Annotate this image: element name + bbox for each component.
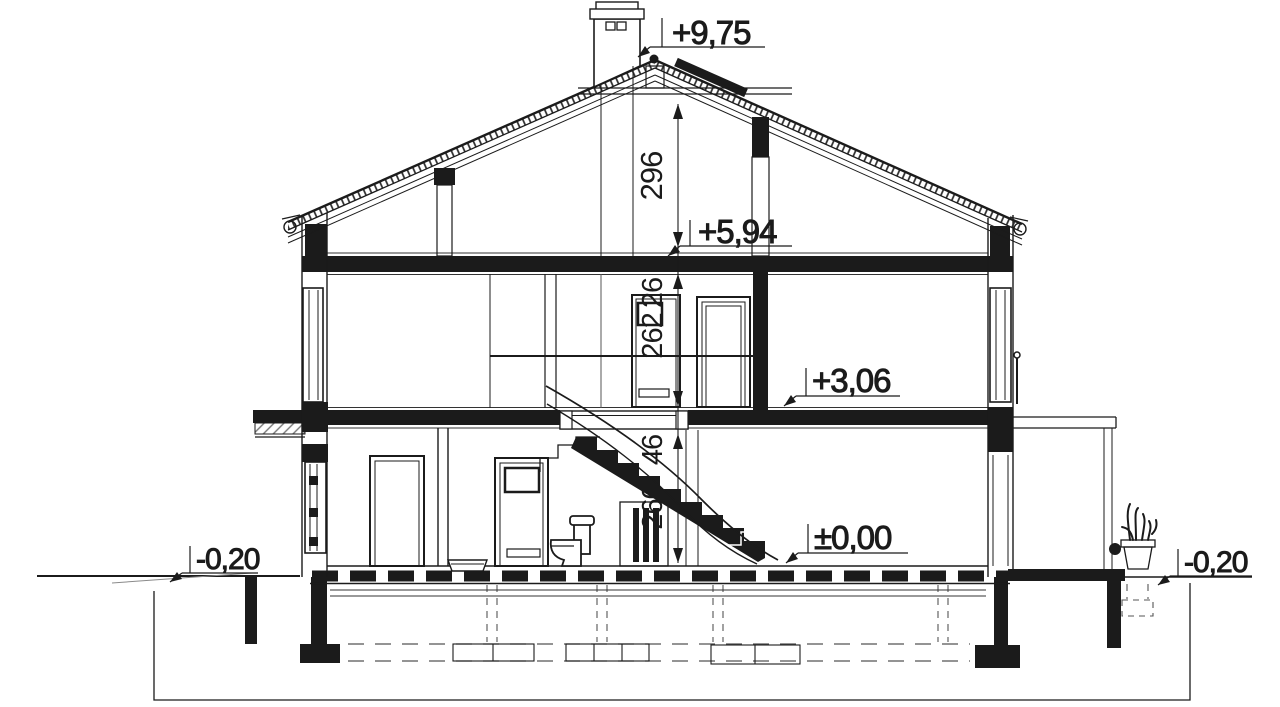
floor-basin — [448, 560, 487, 571]
level-mark-attic-floor: +5,94 — [668, 213, 792, 256]
dim-attic-height: 296 — [634, 152, 669, 201]
potted-plant — [1109, 504, 1157, 569]
cross-section-sheet: 296 26 262 46 260 +9,75 +5,94 — [0, 0, 1280, 707]
svg-text:+5,94: +5,94 — [698, 213, 777, 250]
level-mark-grade-right: -0,20 — [1158, 546, 1252, 585]
level-mark-ridge: +9,75 — [638, 14, 765, 57]
svg-text:+3,06: +3,06 — [812, 362, 891, 399]
toilet — [551, 516, 594, 566]
left-upper-window — [303, 288, 323, 402]
svg-text:+9,75: +9,75 — [672, 14, 751, 51]
chimney — [590, 2, 644, 256]
level-mark-ground-floor: ±0,00 — [786, 519, 908, 563]
level-mark-first-floor: +3,06 — [784, 362, 900, 406]
excavation-outline — [154, 583, 1190, 700]
left-ground-glazed-door — [305, 462, 326, 553]
svg-text:-0,20: -0,20 — [196, 543, 260, 576]
upper-floor-interior — [490, 272, 768, 410]
ground-door-2 — [495, 458, 548, 566]
svg-text:-0,20: -0,20 — [1184, 546, 1248, 579]
dim-upper-slab: 26 — [637, 278, 669, 308]
ground-door-1 — [370, 456, 424, 566]
right-upper-window — [990, 288, 1020, 404]
dim-ground-slab: 46 — [637, 435, 669, 465]
right-terrace — [1013, 417, 1157, 569]
upper-door-2 — [697, 297, 750, 407]
ridge-cap — [650, 55, 659, 64]
house-cross-section-drawing: 296 26 262 46 260 +9,75 +5,94 — [0, 0, 1280, 707]
dim-upper-room-height: 262 — [637, 313, 669, 358]
stairwell-opening — [560, 411, 688, 429]
foundation-group — [37, 573, 1252, 700]
roof-group — [282, 55, 1028, 246]
svg-text:±0,00: ±0,00 — [814, 519, 892, 556]
